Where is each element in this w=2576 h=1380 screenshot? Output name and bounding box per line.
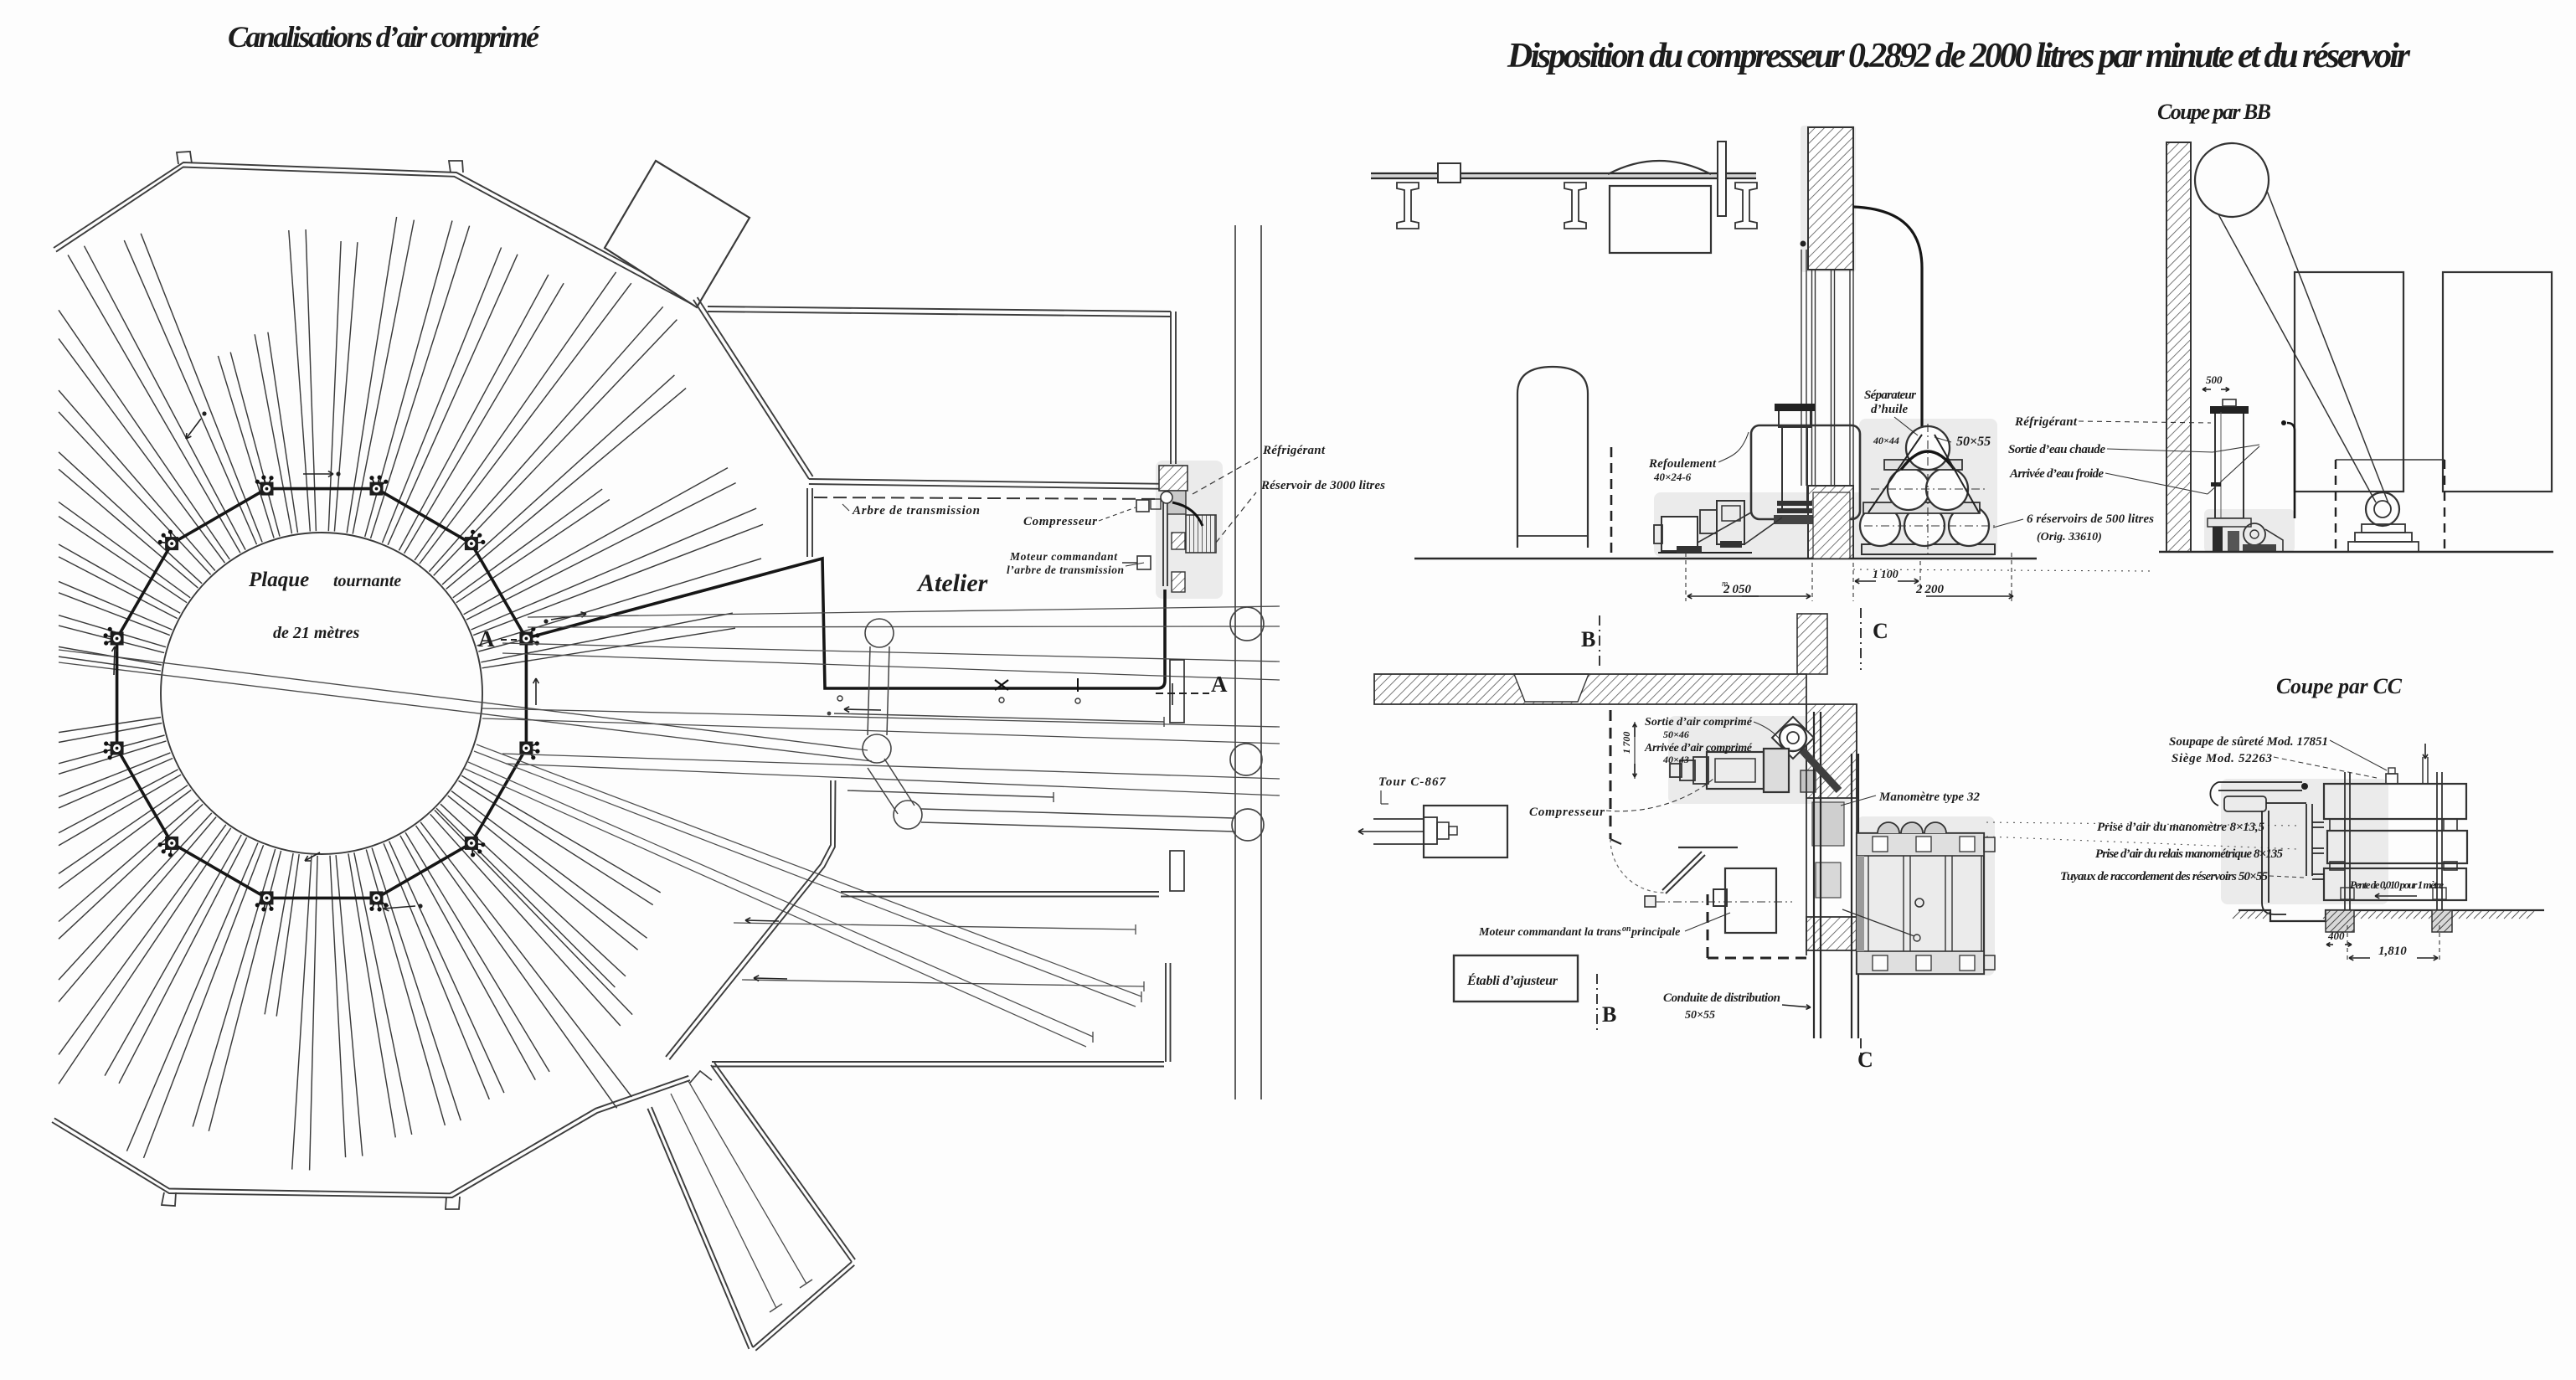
svg-text:(Orig. 33610): (Orig. 33610) bbox=[2037, 531, 2102, 543]
svg-text:l’arbre de transmission: l’arbre de transmission bbox=[1007, 564, 1124, 576]
svg-text:Sortie d’eau chaude: Sortie d’eau chaude bbox=[2008, 443, 2105, 456]
svg-text:Soupape de sûreté Mod. 17851: Soupape de sûreté Mod. 17851 bbox=[2169, 735, 2328, 749]
svg-text:m: m bbox=[1722, 579, 1728, 589]
svg-text:50×46: 50×46 bbox=[1663, 729, 1689, 740]
svg-text:Moteur commandant la trans: Moteur commandant la trans bbox=[1478, 926, 1622, 939]
svg-text:Séparateur: Séparateur bbox=[1864, 389, 1916, 402]
svg-text:principale: principale bbox=[1631, 926, 1680, 939]
svg-text:Plaque: Plaque bbox=[248, 569, 309, 591]
svg-text:B: B bbox=[1602, 1002, 1616, 1027]
svg-text:C: C bbox=[1873, 619, 1888, 643]
svg-text:Conduite de distribution: Conduite de distribution bbox=[1663, 991, 1780, 1005]
svg-text:Sortie d’air comprimé: Sortie d’air comprimé bbox=[1645, 716, 1753, 729]
svg-text:Tour C-867: Tour C-867 bbox=[1378, 775, 1446, 789]
svg-text:Refoulement: Refoulement bbox=[1648, 457, 1717, 471]
svg-text:d’huile: d’huile bbox=[1871, 403, 1909, 416]
svg-text:Réfrigérant: Réfrigérant bbox=[2014, 415, 2078, 429]
svg-text:Établi d’ajusteur: Établi d’ajusteur bbox=[1466, 972, 1558, 988]
svg-text:Arbre de transmission: Arbre de transmission bbox=[852, 504, 980, 517]
svg-text:B: B bbox=[1581, 627, 1595, 651]
svg-text:500: 500 bbox=[2206, 373, 2223, 386]
svg-text:Prise d’air du relais manométr: Prise d’air du relais manométrique 8×135 bbox=[2095, 847, 2284, 861]
svg-text:40×43: 40×43 bbox=[1662, 754, 1689, 765]
svg-text:2 200: 2 200 bbox=[1915, 583, 1945, 596]
svg-text:tournante: tournante bbox=[333, 572, 401, 590]
svg-text:A: A bbox=[1211, 672, 1228, 697]
svg-text:de 21 mètres: de 21 mètres bbox=[273, 624, 360, 642]
svg-text:Arrivée d’air comprimé: Arrivée d’air comprimé bbox=[1644, 742, 1753, 754]
svg-text:C: C bbox=[1857, 1048, 1873, 1072]
svg-text:1 700: 1 700 bbox=[1620, 732, 1632, 754]
svg-text:1,810: 1,810 bbox=[2378, 945, 2407, 958]
svg-text:400: 400 bbox=[2327, 929, 2345, 942]
svg-text:on: on bbox=[1622, 924, 1631, 934]
svg-text:Prise d’air du manomètre 8×13: Prise d’air du manomètre 8×13,5 bbox=[2097, 821, 2265, 834]
svg-text:Tuyaux de raccordement des rés: Tuyaux de raccordement des réservoirs 50… bbox=[2060, 870, 2269, 883]
svg-text:6 réservoirs de 500 litres: 6 réservoirs de 500 litres bbox=[2027, 512, 2154, 526]
svg-text:40×24-6: 40×24-6 bbox=[1653, 471, 1692, 483]
svg-text:Réfrigérant: Réfrigérant bbox=[1262, 444, 1326, 457]
svg-text:Réservoir de 3000 litres: Réservoir de 3000 litres bbox=[1260, 479, 1385, 492]
svg-text:Coupe par BB: Coupe par BB bbox=[2157, 100, 2271, 124]
svg-text:A: A bbox=[478, 626, 495, 651]
svg-text:50×55: 50×55 bbox=[1685, 1009, 1715, 1022]
svg-text:Arrivée d’eau froide: Arrivée d’eau froide bbox=[2009, 467, 2104, 481]
svg-text:50×55: 50×55 bbox=[1956, 435, 1991, 449]
svg-text:Pente de 0,010 pour 1 mètre: Pente de 0,010 pour 1 mètre bbox=[2350, 878, 2444, 891]
svg-text:Manomètre type 32: Manomètre type 32 bbox=[1878, 790, 1981, 804]
svg-text:Siège Mod. 52263: Siège Mod. 52263 bbox=[2172, 752, 2273, 765]
svg-text:Coupe par CC: Coupe par CC bbox=[2276, 674, 2403, 698]
svg-text:40×44: 40×44 bbox=[1873, 435, 1899, 446]
svg-text:1 100: 1 100 bbox=[1873, 569, 1899, 581]
svg-text:Moteur commandant: Moteur commandant bbox=[1009, 550, 1118, 563]
svg-text:Atelier: Atelier bbox=[916, 569, 988, 597]
svg-text:Compresseur: Compresseur bbox=[1529, 806, 1605, 819]
svg-text:Canalisations d’air comprimé: Canalisations d’air comprimé bbox=[228, 20, 540, 54]
svg-text:Disposition du compresseur 0.2: Disposition du compresseur 0.2892 de 200… bbox=[1507, 37, 2411, 75]
svg-text:Compresseur: Compresseur bbox=[1023, 515, 1097, 528]
